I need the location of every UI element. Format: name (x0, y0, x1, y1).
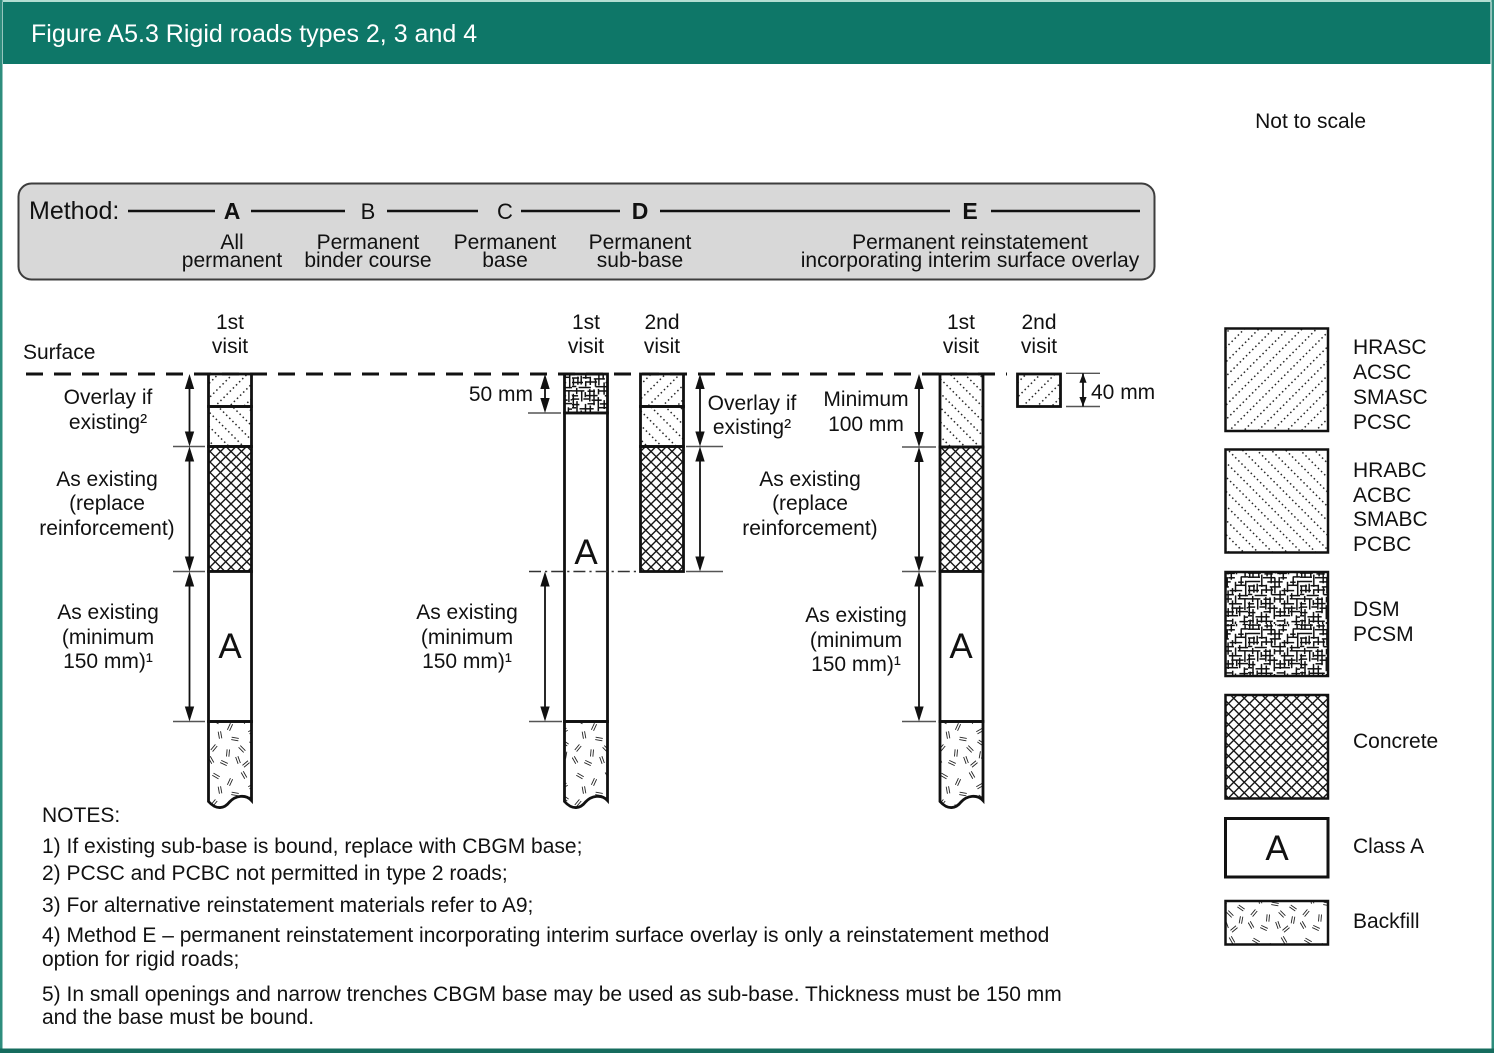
svg-text:Overlay if: Overlay if (708, 392, 797, 415)
svg-text:option for rigid roads;: option for rigid roads; (42, 948, 239, 971)
svg-text:As existing: As existing (805, 604, 907, 627)
svg-text:B: B (361, 199, 376, 224)
svg-text:40 mm: 40 mm (1091, 381, 1155, 404)
svg-text:150 mm)¹: 150 mm)¹ (422, 650, 512, 673)
svg-text:As existing: As existing (759, 468, 861, 491)
svg-text:2nd: 2nd (644, 311, 679, 334)
svg-text:Class A: Class A (1353, 835, 1424, 858)
svg-text:binder course: binder course (304, 249, 431, 272)
svg-text:permanent: permanent (182, 249, 283, 272)
svg-text:visit: visit (1021, 335, 1057, 358)
svg-text:1) If existing sub-base is bou: 1) If existing sub-base is bound, replac… (42, 835, 582, 858)
svg-text:incorporating interim surface: incorporating interim surface overlay (801, 249, 1140, 272)
svg-text:existing²: existing² (713, 416, 791, 439)
svg-text:E: E (962, 198, 977, 224)
svg-text:ACSC: ACSC (1353, 361, 1411, 384)
svg-text:5) In small openings and narro: 5) In small openings and narrow trenches… (42, 983, 1062, 1006)
svg-text:Not to scale: Not to scale (1255, 110, 1366, 133)
svg-text:(replace: (replace (772, 492, 848, 515)
svg-text:and the base must be bound.: and the base must be bound. (42, 1006, 314, 1029)
svg-text:Overlay if: Overlay if (64, 386, 153, 409)
svg-text:As existing: As existing (56, 468, 158, 491)
svg-text:NOTES:: NOTES: (42, 804, 120, 827)
svg-text:100 mm: 100 mm (828, 413, 904, 436)
svg-text:Concrete: Concrete (1353, 730, 1438, 753)
svg-text:A: A (1265, 829, 1289, 868)
svg-text:As existing: As existing (57, 601, 159, 624)
svg-text:reinforcement): reinforcement) (39, 517, 174, 540)
svg-text:SMASC: SMASC (1353, 386, 1428, 409)
svg-text:HRABC: HRABC (1353, 459, 1427, 482)
svg-text:visit: visit (212, 335, 248, 358)
svg-text:Surface: Surface (23, 341, 95, 364)
svg-text:4) Method E – permanent reinst: 4) Method E – permanent reinstatement in… (42, 924, 1049, 947)
svg-text:ACBC: ACBC (1353, 484, 1411, 507)
svg-text:PCSM: PCSM (1353, 623, 1414, 646)
svg-text:PCSC: PCSC (1353, 411, 1411, 434)
svg-text:Method:: Method: (29, 197, 119, 225)
svg-text:As existing: As existing (416, 601, 518, 624)
svg-text:visit: visit (568, 335, 604, 358)
svg-text:Backfill: Backfill (1353, 910, 1420, 933)
svg-text:base: base (482, 249, 528, 272)
svg-text:D: D (632, 198, 649, 224)
svg-text:visit: visit (943, 335, 979, 358)
svg-text:2) PCSC and PCBC not permitted: 2) PCSC and PCBC not permitted in type 2… (42, 862, 508, 885)
svg-text:sub-base: sub-base (597, 249, 683, 272)
svg-text:3) For alternative reinstateme: 3) For alternative reinstatement materia… (42, 894, 533, 917)
svg-text:PCBC: PCBC (1353, 533, 1411, 556)
svg-text:50 mm: 50 mm (469, 383, 533, 406)
svg-text:A: A (224, 198, 241, 224)
svg-text:1st: 1st (216, 311, 244, 334)
svg-text:reinforcement): reinforcement) (742, 517, 877, 540)
svg-text:(minimum: (minimum (62, 626, 154, 649)
svg-text:C: C (497, 199, 513, 224)
svg-text:Figure A5.3 Rigid roads types: Figure A5.3 Rigid roads types 2, 3 and 4 (31, 20, 477, 48)
svg-text:Minimum: Minimum (823, 388, 908, 411)
svg-text:HRASC: HRASC (1353, 336, 1427, 359)
svg-text:1st: 1st (572, 311, 600, 334)
svg-text:(minimum: (minimum (810, 629, 902, 652)
svg-text:existing²: existing² (69, 411, 147, 434)
svg-text:1st: 1st (947, 311, 975, 334)
svg-text:A: A (574, 533, 598, 572)
svg-text:DSM: DSM (1353, 598, 1400, 621)
svg-text:SMABC: SMABC (1353, 508, 1428, 531)
svg-text:visit: visit (644, 335, 680, 358)
svg-text:150 mm)¹: 150 mm)¹ (63, 650, 153, 673)
svg-text:(minimum: (minimum (421, 626, 513, 649)
svg-text:(replace: (replace (69, 492, 145, 515)
svg-text:2nd: 2nd (1021, 311, 1056, 334)
svg-text:150 mm)¹: 150 mm)¹ (811, 653, 901, 676)
svg-text:A: A (949, 627, 973, 666)
svg-text:A: A (218, 627, 242, 666)
